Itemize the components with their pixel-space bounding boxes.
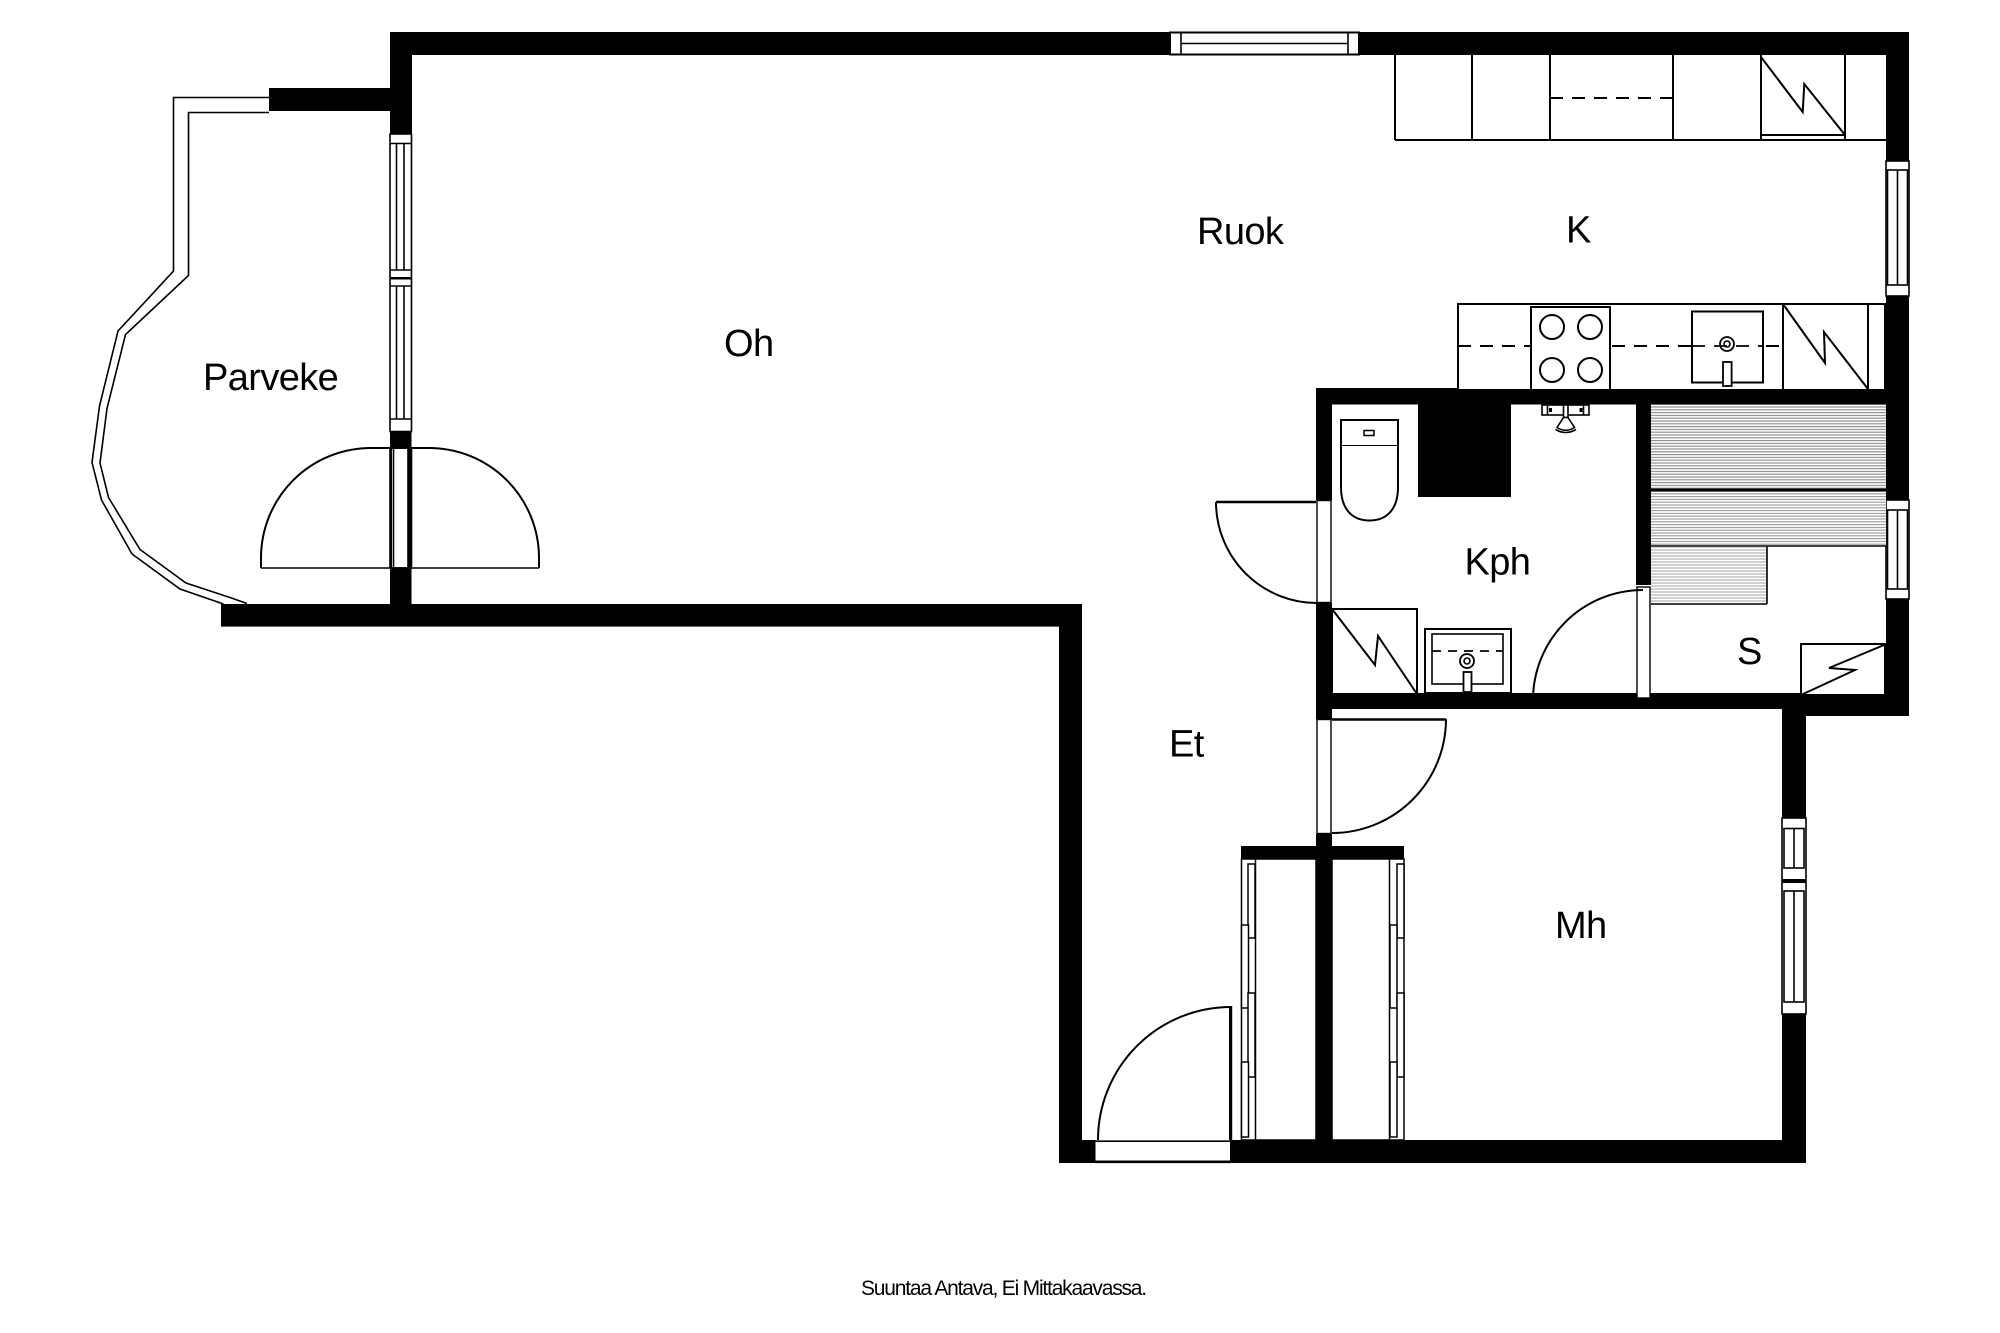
svg-text:Suuntaa Antava, Ei Mittakaavas: Suuntaa Antava, Ei Mittakaavassa. (861, 1277, 1146, 1300)
svg-text:Ruok: Ruok (1197, 211, 1285, 253)
svg-text:Oh: Oh (724, 323, 774, 365)
svg-text:S: S (1737, 631, 1762, 673)
svg-text:Kph: Kph (1465, 542, 1531, 584)
svg-text:Et: Et (1169, 724, 1205, 766)
svg-text:K: K (1566, 210, 1591, 252)
svg-text:Mh: Mh (1555, 905, 1607, 947)
svg-text:Parveke: Parveke (203, 357, 338, 399)
